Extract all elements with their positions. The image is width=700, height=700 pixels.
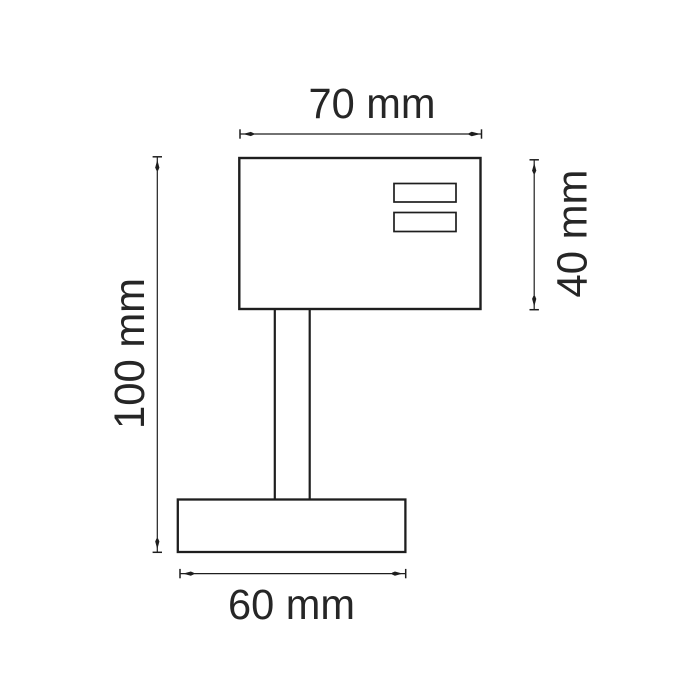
svg-text:100 mm: 100 mm <box>106 278 154 429</box>
svg-text:70 mm: 70 mm <box>309 80 436 128</box>
svg-text:60 mm: 60 mm <box>228 581 355 629</box>
svg-text:40 mm: 40 mm <box>549 170 597 298</box>
